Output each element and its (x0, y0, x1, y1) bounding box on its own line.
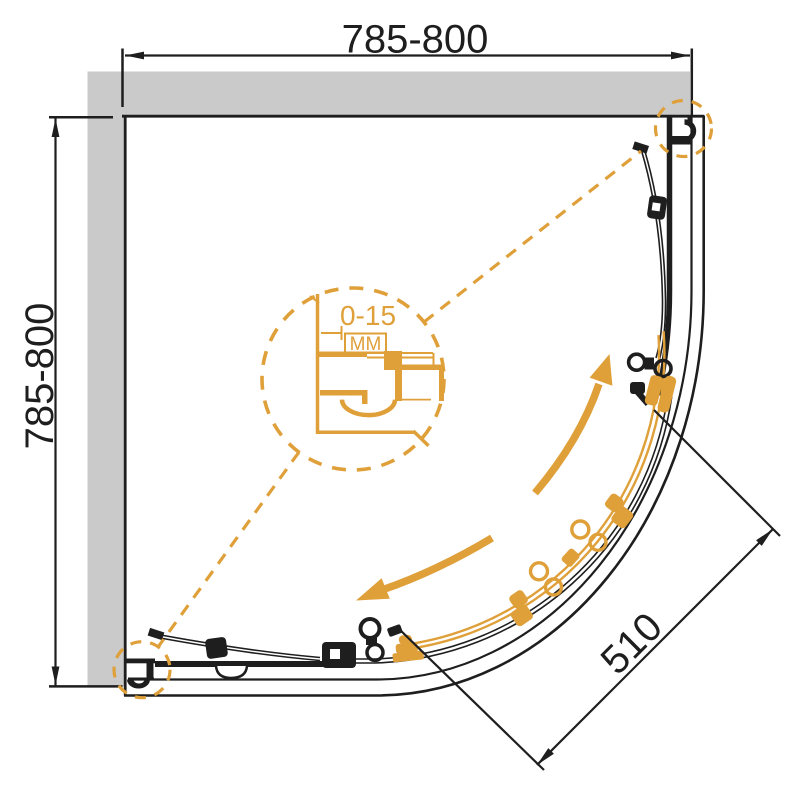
svg-text:ММ: ММ (350, 334, 382, 355)
svg-text:785-800: 785-800 (18, 303, 62, 450)
svg-text:0-15: 0-15 (340, 300, 396, 331)
svg-text:785-800: 785-800 (342, 18, 489, 62)
